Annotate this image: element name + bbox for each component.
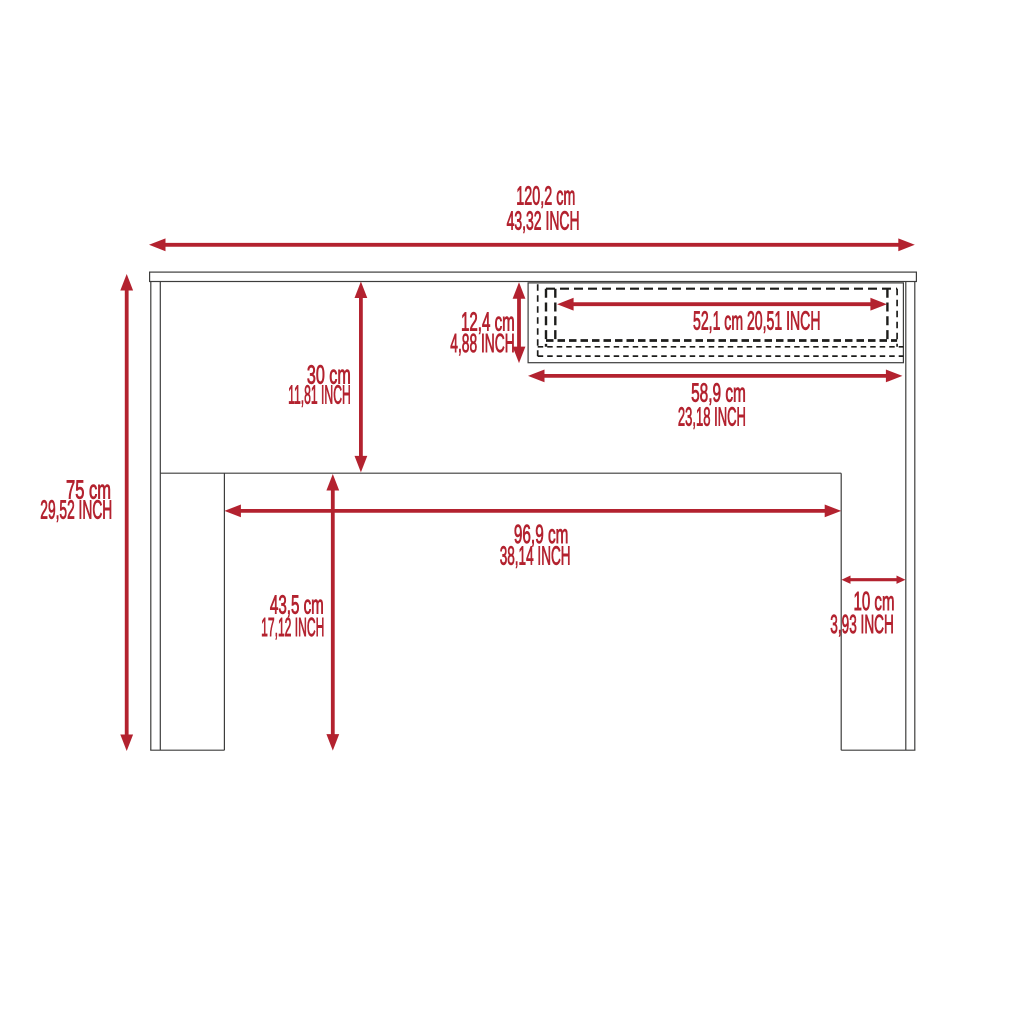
svg-text:29,52 INCH: 29,52 INCH bbox=[40, 495, 112, 525]
svg-text:38,14 INCH: 38,14 INCH bbox=[500, 541, 571, 571]
svg-text:43,32 INCH: 43,32 INCH bbox=[507, 206, 580, 236]
svg-text:52,1 cm 20,51 INCH: 52,1 cm 20,51 INCH bbox=[693, 306, 821, 336]
svg-text:11,81 INCH: 11,81 INCH bbox=[288, 380, 351, 410]
svg-text:4,88 INCH: 4,88 INCH bbox=[450, 328, 514, 358]
svg-text:23,18 INCH: 23,18 INCH bbox=[678, 402, 746, 432]
svg-text:17,12 INCH: 17,12 INCH bbox=[261, 612, 324, 642]
svg-text:3,93 INCH: 3,93 INCH bbox=[830, 609, 894, 639]
